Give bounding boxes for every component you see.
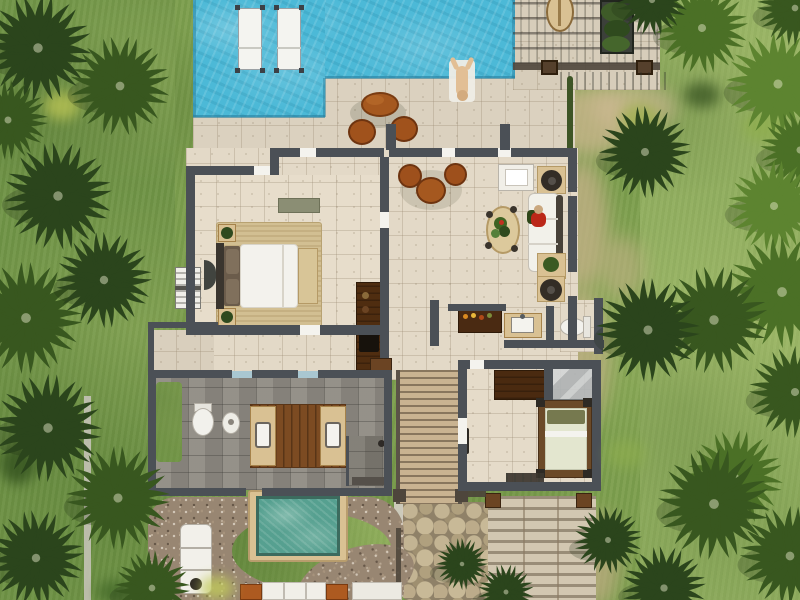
bed2-post (583, 469, 592, 478)
massage-table-line (180, 569, 212, 571)
daybed-end (326, 584, 348, 600)
wall-living-east (568, 296, 577, 344)
bush (684, 82, 720, 108)
bush (742, 112, 786, 142)
nightstand-plant (221, 227, 233, 239)
wall-bath-north (318, 370, 392, 378)
bathroom-garden (156, 382, 182, 462)
wall-bedroom-east-upper (380, 157, 389, 212)
wall-living-north (511, 148, 572, 157)
wall-mid-vert (430, 300, 439, 346)
vanity-sink (325, 422, 341, 448)
luggage-bench (278, 198, 320, 213)
bed-pillow (226, 249, 239, 274)
wall-column-stub (500, 124, 510, 150)
pool-edge (323, 78, 326, 117)
bed2-fold (545, 431, 587, 437)
coffee-table-plant (499, 226, 510, 237)
pergola-walkway-south (488, 496, 596, 600)
hall-basin (511, 317, 534, 333)
entry-hedge (567, 76, 573, 152)
armchair-hub (548, 177, 556, 185)
seated-person-body (531, 212, 546, 227)
bed-pillow (226, 279, 239, 304)
door-living (442, 148, 455, 157)
cabana-platform (352, 582, 402, 600)
lounger-foot (274, 68, 279, 73)
lounger-foot (274, 5, 279, 10)
door-bedroom2-west (458, 418, 467, 444)
walkway-post (393, 489, 406, 502)
bed2-post (583, 398, 592, 407)
walkway-beam (396, 370, 400, 504)
vanity-sink (255, 422, 271, 448)
coffee-table-plant (491, 229, 500, 238)
coffee-table-knob (485, 242, 492, 249)
wall-mid-south (504, 340, 604, 348)
shower-bench (352, 477, 384, 485)
wall-patio-left (148, 322, 154, 376)
wall-west-main (186, 166, 195, 334)
pool-lounger (238, 8, 262, 70)
door-bath-glass (232, 371, 252, 378)
coffee-table-knob (486, 211, 493, 218)
planter-plant (601, 2, 631, 22)
wall-mid-horiz (448, 304, 506, 311)
lounger-foot (260, 5, 265, 10)
bed-foot-bench (298, 248, 318, 304)
wall-bedroom-north-east (270, 148, 384, 157)
wall-living-north (389, 148, 442, 157)
door-bath-glass (298, 371, 318, 378)
pool-lounger-bar (277, 47, 301, 49)
minibar-bottle (463, 314, 468, 319)
side-pad-plant (543, 257, 559, 272)
pool-edge (325, 76, 515, 79)
door-bedroom-south (300, 325, 320, 335)
kitchen-item (362, 292, 369, 299)
plunge-pool-water (259, 499, 337, 553)
villa-site-plan (0, 0, 800, 600)
minibar-bottle (471, 313, 476, 318)
lounger-foot (299, 5, 304, 10)
daybed-end (240, 584, 262, 600)
property-wall-west (84, 396, 91, 600)
pool-edge (193, 115, 325, 118)
entry-pergola-slats (520, 0, 660, 64)
wall-mid-vert2 (546, 306, 554, 344)
sunbather-head (457, 90, 468, 101)
deck-chair (348, 119, 376, 145)
bush (0, 444, 36, 484)
pergola-shadow-on-grass (560, 72, 672, 90)
rattan-pouf (444, 163, 467, 186)
bush (606, 440, 646, 468)
pergola-post (485, 493, 501, 508)
bush (200, 576, 234, 600)
wall-living-east (568, 148, 577, 192)
seated-person-head (534, 205, 543, 214)
wall-bath-south (148, 488, 246, 496)
wall-bedroom2-south (458, 482, 601, 491)
wall-bath-west (148, 370, 156, 496)
wall-bedroom2-west (458, 360, 467, 418)
door-bedroom-east (380, 212, 389, 228)
wall-bath-south (262, 488, 392, 496)
pergola-walkway-joint (557, 496, 559, 600)
wall-bedroom-east-lower (380, 228, 389, 335)
nightstand-plant (221, 311, 233, 323)
lounger-foot (235, 5, 240, 10)
kitchen-cooktop (359, 334, 379, 352)
wall-bath-east (384, 370, 392, 496)
guest-toilet-tank (583, 316, 591, 338)
deck-table-highlight (366, 95, 384, 105)
bed-mattress (240, 244, 298, 308)
bush (44, 92, 80, 120)
sand-patch (600, 236, 644, 300)
lounger-foot (235, 68, 240, 73)
kitchen-item (362, 306, 369, 313)
minibar-bottle (487, 313, 492, 318)
bidet-drain (228, 419, 234, 425)
wall-bath-north (252, 370, 298, 378)
coffee-table-flower (499, 220, 504, 225)
shower-screen (346, 436, 349, 486)
wall-column-stub (386, 124, 396, 150)
wood-walkway (398, 370, 460, 504)
bush (620, 104, 660, 134)
sofa-cushion-line (528, 243, 558, 245)
door-terrace (300, 148, 316, 157)
door-bedroom2-north (470, 360, 484, 369)
daybed-cushion (262, 582, 326, 600)
daybed-cushion-line (305, 582, 307, 600)
wardrobe (494, 370, 546, 400)
massage-table-line (180, 547, 212, 549)
door-bedroom-north (254, 166, 270, 175)
bush (96, 580, 136, 600)
pergola-post (576, 493, 592, 508)
pergola-walkway-joint (523, 496, 525, 600)
lounger-foot (260, 68, 265, 73)
coffee-table-knob (511, 245, 518, 252)
wall-bedroom2-east (592, 360, 601, 491)
planter-plant (602, 36, 630, 52)
wall-bedroom-north-west (186, 166, 254, 175)
daybed-cushion-line (283, 582, 285, 600)
flagstone-path (402, 502, 488, 600)
bed-duvet-fold (282, 244, 284, 308)
armchair-hub (547, 286, 555, 294)
console-table-top (505, 169, 528, 186)
gravel-fence-east (396, 528, 401, 586)
coffee-table-knob (510, 206, 517, 213)
bed-headboard (216, 243, 224, 309)
hall-faucet (520, 314, 525, 319)
toilet-bowl (192, 408, 214, 436)
bed2-pillows (547, 410, 585, 424)
paddleboard-stripe (558, 0, 561, 26)
wall-bath-north (148, 370, 232, 378)
wall-glass-frame (544, 362, 553, 400)
wall-living-north (455, 148, 498, 157)
entry-pergola-post (541, 60, 558, 75)
pool-lounger (277, 8, 301, 70)
minibar-bottle (479, 315, 484, 320)
wall-living-east (568, 196, 577, 272)
lounger-foot (299, 68, 304, 73)
lawn-right-sun (640, 0, 800, 600)
pool-edge (193, 0, 196, 117)
pool-lounger-bar (238, 47, 262, 49)
rattan-pouf (416, 177, 446, 204)
glass-closet (548, 368, 594, 400)
wall-patio-top (148, 322, 218, 328)
wall-bedroom-south-east (320, 325, 384, 335)
